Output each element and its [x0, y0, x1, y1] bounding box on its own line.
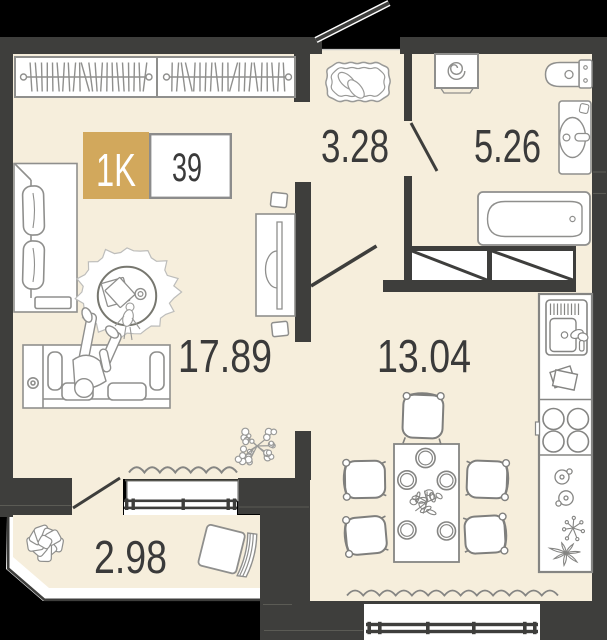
svg-text:1K: 1K: [96, 144, 136, 196]
svg-text:13.04: 13.04: [377, 330, 471, 382]
svg-text:17.89: 17.89: [178, 330, 272, 382]
svg-text:2.98: 2.98: [94, 531, 167, 583]
svg-text:3.28: 3.28: [321, 120, 389, 172]
svg-text:5.26: 5.26: [474, 120, 541, 172]
svg-text:39: 39: [172, 146, 202, 190]
